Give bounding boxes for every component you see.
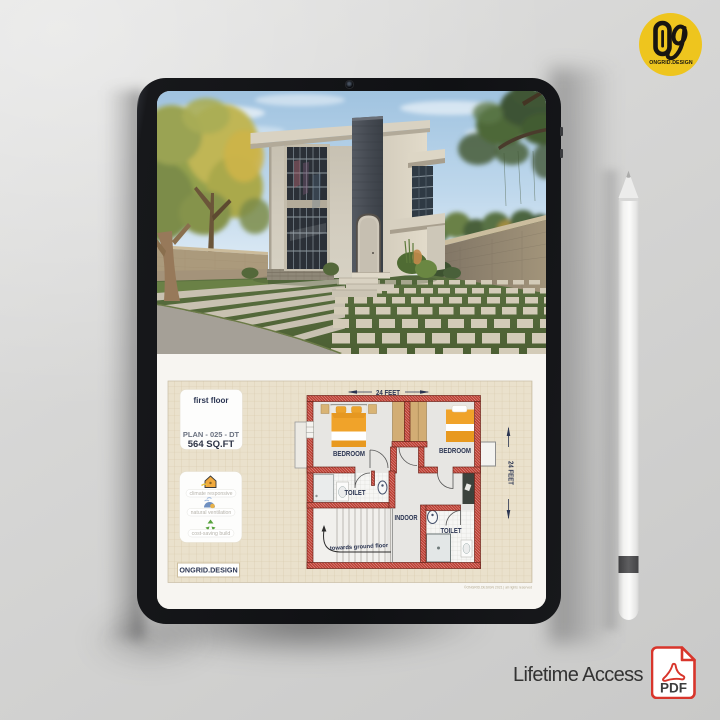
svg-text:cost-saving build: cost-saving build: [192, 531, 231, 537]
svg-text:PDF: PDF: [660, 681, 687, 696]
svg-text:first floor: first floor: [193, 396, 228, 405]
svg-text:24 FEET: 24 FEET: [507, 461, 516, 485]
svg-text:natural ventilation: natural ventilation: [191, 510, 232, 516]
svg-text:TOILET: TOILET: [345, 490, 367, 497]
svg-text:BEDROOM: BEDROOM: [333, 449, 365, 458]
svg-text:564 SQ.FT: 564 SQ.FT: [188, 439, 235, 450]
svg-text:ONGRID.DESIGN: ONGRID.DESIGN: [649, 60, 693, 66]
svg-text:©ONGRID.DESIGN 2021 | all righ: ©ONGRID.DESIGN 2021 | all rights reserve…: [464, 585, 532, 589]
svg-text:PLAN - 025 - DT: PLAN - 025 - DT: [183, 430, 240, 439]
svg-text:BEDROOM: BEDROOM: [439, 446, 471, 455]
svg-text:24 FEET: 24 FEET: [376, 388, 400, 397]
svg-text:TOILET: TOILET: [441, 528, 463, 535]
svg-text:INDOOR: INDOOR: [395, 515, 418, 522]
svg-text:climate responsive: climate responsive: [190, 491, 233, 497]
svg-text:ONGRID.DESIGN: ONGRID.DESIGN: [179, 565, 237, 574]
